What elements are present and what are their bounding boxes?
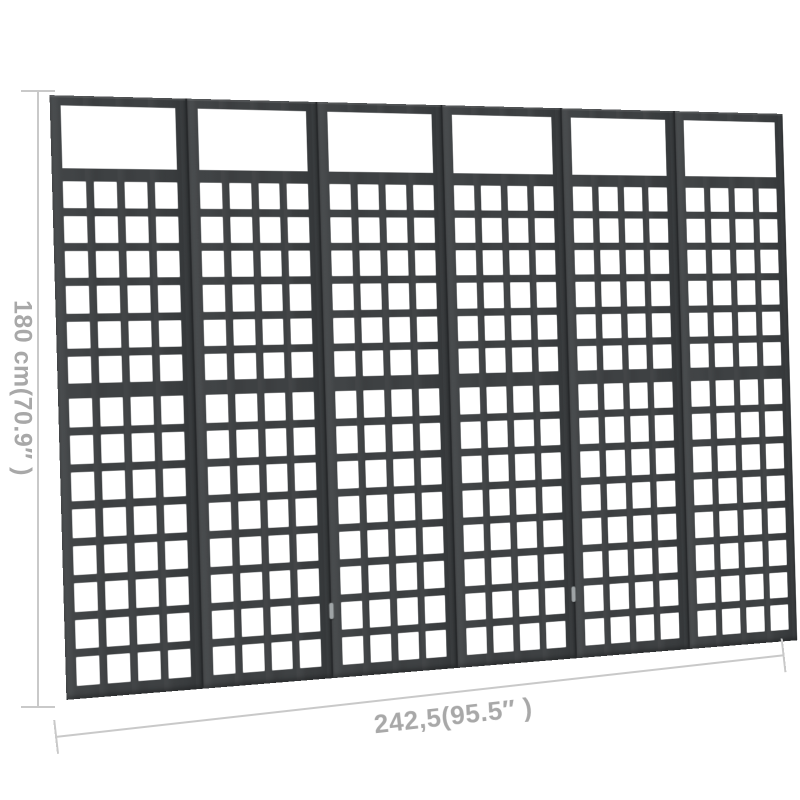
lattice-hole (232, 285, 255, 311)
lattice-hole (236, 429, 259, 458)
lattice-hole (579, 417, 599, 444)
lattice-hole (459, 387, 480, 414)
upper-lattice (454, 185, 558, 373)
lattice-hole (271, 641, 293, 671)
lattice-hole (457, 316, 478, 342)
lattice-hole (101, 434, 125, 464)
lattice-hole (73, 545, 97, 575)
lattice-hole (229, 183, 252, 209)
lattice-hole (161, 395, 184, 424)
lattice-hole (331, 251, 353, 277)
lattice-hole (94, 182, 118, 209)
lattice-hole (651, 281, 670, 305)
lattice-hole (205, 394, 228, 423)
lattice-hole (713, 281, 732, 305)
lattice-hole (759, 188, 778, 212)
lattice-hole (720, 543, 739, 570)
lattice-hole (511, 315, 531, 340)
lattice-hole (156, 251, 179, 278)
lattice-hole (297, 533, 319, 562)
lattice-hole (130, 396, 153, 425)
lattice-hole (744, 541, 763, 568)
lower-lattice (691, 379, 789, 637)
lattice-hole (540, 419, 560, 446)
lattice-hole (269, 570, 291, 599)
lattice-hole (338, 496, 360, 525)
lattice-hole (204, 353, 227, 380)
lower-lattice (69, 395, 191, 686)
lattice-hole (66, 286, 90, 313)
lattice-hole (582, 518, 602, 545)
lattice-hole (69, 398, 93, 428)
product-dimension-image: 180 cm(70.9″ ) 242,5(95.5″ ) (0, 0, 800, 800)
lattice-hole (421, 457, 442, 485)
lattice-hole (231, 251, 254, 277)
height-dimension-bottom-cap (21, 706, 55, 708)
lattice-hole (365, 459, 387, 487)
lattice-hole (288, 217, 310, 243)
lattice-hole (538, 346, 558, 371)
lattice-hole (425, 595, 446, 624)
lattice-hole (238, 500, 261, 529)
lattice-hole (744, 509, 763, 535)
lattice-hole (416, 283, 437, 309)
lattice-hole (517, 521, 537, 549)
lattice-hole (72, 508, 96, 538)
lattice-hole (721, 575, 740, 602)
lower-lattice (205, 392, 321, 675)
hinge (572, 587, 576, 603)
lattice-hole (106, 617, 130, 647)
lattice-hole (649, 219, 668, 243)
lattice-hole (600, 250, 620, 275)
lattice-hole (393, 458, 414, 486)
lattice-hole (492, 591, 513, 619)
lattice-hole (577, 346, 597, 371)
lattice-hole (604, 383, 624, 410)
lattice-hole (298, 568, 320, 597)
lattice-hole (768, 508, 787, 534)
lattice-hole (544, 553, 564, 581)
lattice-hole (576, 314, 596, 339)
lattice-hole (650, 250, 669, 274)
lattice-hole (391, 389, 412, 417)
lattice-hole (482, 250, 503, 275)
lattice-hole (397, 597, 418, 626)
lattice-hole (330, 184, 352, 210)
lattice-hole (696, 544, 715, 571)
lattice-hole (765, 411, 784, 437)
lattice-hole (74, 582, 98, 612)
lattice-hole (694, 479, 713, 506)
lattice-hole (688, 250, 707, 274)
lattice-hole (199, 183, 222, 210)
lattice-hole (363, 390, 385, 418)
lattice-hole (761, 281, 780, 305)
lattice-hole (714, 312, 733, 336)
lattice-hole (341, 601, 363, 630)
lattice-hole (491, 557, 512, 585)
lattice-hole (712, 250, 731, 274)
lattice-hole (167, 612, 190, 642)
lattice-hole (203, 319, 226, 346)
lattice-hole (165, 540, 188, 570)
lattice-hole (608, 550, 628, 577)
lattice-hole (293, 392, 315, 420)
panel-top-window (570, 118, 666, 176)
lattice-hole (417, 316, 438, 342)
lattice-hole (737, 281, 756, 305)
lattice-hole (389, 317, 410, 343)
lattice-hole (539, 385, 559, 412)
lattice-hole (104, 543, 128, 573)
lattice-hole (296, 498, 318, 527)
lattice-hole (233, 319, 256, 346)
upper-lattice (686, 188, 782, 368)
lattice-hole (719, 510, 738, 537)
lattice-hole (424, 561, 445, 589)
panel-top-window (328, 112, 434, 173)
lattice-hole (157, 285, 180, 312)
lattice-hole (291, 318, 313, 344)
lattice-hole (487, 420, 508, 447)
lattice-hole (489, 489, 510, 517)
lattice-hole (461, 456, 482, 484)
lattice-hole (652, 313, 671, 338)
hinge (329, 603, 334, 619)
lattice-hole (657, 481, 676, 508)
lattice-hole (460, 421, 481, 449)
lattice-hole (770, 604, 789, 631)
lattice-hole (234, 353, 257, 380)
lattice-hole (519, 623, 539, 651)
lattice-hole (541, 452, 561, 479)
lattice-hole (332, 284, 354, 310)
lattice-hole (454, 185, 475, 210)
lattice-hole (626, 282, 646, 307)
lattice-hole (735, 188, 754, 212)
lattice-hole (742, 444, 761, 470)
lattice-hole (335, 391, 357, 419)
lattice-hole (598, 187, 618, 212)
room-divider (50, 95, 798, 700)
lattice-hole (738, 312, 757, 336)
lattice-hole (127, 286, 150, 313)
lattice-hole (100, 397, 124, 426)
lattice-hole (689, 312, 708, 336)
lattice-hole (164, 504, 187, 534)
lattice-hole (722, 608, 741, 635)
lattice-hole (270, 606, 292, 635)
lattice-hole (631, 449, 651, 476)
lattice-hole (129, 355, 152, 382)
lattice-hole (336, 426, 358, 454)
divider-panel (441, 105, 576, 668)
lattice-hole (515, 453, 535, 480)
lattice-hole (697, 577, 716, 604)
lattice-hole (237, 465, 260, 494)
lattice-hole (746, 606, 765, 633)
panel-top-window (452, 115, 553, 175)
lattice-hole (455, 218, 476, 243)
lattice-hole (572, 186, 592, 211)
lattice-hole (128, 320, 151, 347)
lattice-hole (331, 217, 353, 243)
lattice-hole (633, 515, 653, 542)
lattice-hole (717, 445, 736, 471)
lattice-hole (260, 251, 282, 277)
lattice-hole (546, 621, 566, 649)
divider-panel (560, 108, 689, 658)
lattice-hole (585, 618, 605, 646)
lattice-hole (510, 283, 530, 308)
lattice-hole (743, 476, 762, 502)
lattice-hole (367, 529, 389, 558)
lattice-hole (655, 415, 674, 442)
lattice-hole (628, 345, 648, 370)
lattice-hole (762, 311, 781, 335)
lattice-hole (507, 186, 527, 211)
lattice-hole (581, 484, 601, 511)
lattice-hole (739, 342, 758, 366)
lattice-hole (610, 616, 630, 644)
divider-panel (316, 102, 457, 678)
lattice-hole (392, 424, 413, 452)
lattice-hole (395, 528, 416, 556)
lattice-hole (136, 615, 159, 645)
divider-panel (674, 111, 798, 649)
lattice-hole (766, 443, 785, 469)
lattice-hole (342, 636, 364, 665)
lattice-hole (625, 250, 645, 274)
lattice-hole (133, 505, 156, 535)
lattice-hole (493, 625, 514, 653)
lattice-hole (71, 472, 95, 502)
lattice-hole (760, 250, 779, 274)
lattice-hole (688, 281, 707, 305)
lower-lattice (335, 388, 446, 665)
lattice-hole (634, 548, 654, 575)
lattice-hole (242, 643, 265, 673)
lattice-hole (263, 352, 285, 379)
lattice-hole (103, 507, 127, 537)
lattice-hole (605, 450, 625, 477)
lattice-hole (482, 218, 503, 243)
lower-lattice (459, 385, 565, 655)
lattice-hole (230, 217, 253, 243)
lattice-hole (388, 284, 409, 310)
lattice-hole (337, 461, 359, 489)
lattice-hole (659, 546, 678, 573)
lattice-hole (368, 564, 390, 593)
lattice-hole (68, 356, 92, 384)
lattice-hole (201, 251, 224, 277)
lattice-hole (764, 379, 783, 405)
lattice-hole (163, 468, 186, 497)
lattice-hole (745, 574, 764, 601)
lattice-hole (95, 216, 119, 243)
lattice-hole (333, 317, 355, 343)
lattice-hole (268, 535, 290, 564)
lattice-hole (458, 348, 479, 374)
lattice-hole (67, 321, 91, 348)
lattice-hole (635, 614, 655, 641)
lattice-hole (535, 250, 555, 275)
lattice-hole (599, 219, 619, 244)
lattice-hole (134, 542, 157, 572)
lattice-hole (102, 470, 126, 500)
lattice-hole (361, 317, 383, 343)
lattice-hole (97, 286, 121, 313)
lattice-hole (166, 576, 189, 606)
lattice-hole (292, 352, 314, 378)
lattice-hole (295, 462, 317, 491)
lattice-hole (483, 283, 504, 308)
lattice-hole (735, 219, 754, 243)
lattice-hole (76, 655, 100, 686)
lattice-hole (485, 348, 506, 373)
lattice-hole (580, 451, 600, 478)
lattice-hole (98, 321, 122, 348)
lattice-hole (583, 551, 603, 578)
lattice-hole (107, 653, 131, 683)
lattice-hole (261, 285, 283, 311)
lattice-hole (514, 419, 534, 446)
lattice-hole (418, 349, 439, 375)
lattice-hole (518, 555, 538, 583)
lattice-hole (542, 486, 562, 513)
lattice-hole (386, 218, 407, 244)
upper-lattice (199, 183, 313, 381)
upper-lattice (330, 184, 439, 377)
lattice-hole (687, 219, 706, 243)
lattice-hole (208, 502, 231, 531)
lattice-hole (715, 343, 734, 367)
lattice-hole (265, 428, 287, 457)
lattice-hole (294, 427, 316, 456)
lattice-hole (653, 344, 672, 369)
height-dimension-line (37, 90, 39, 708)
lattice-hole (533, 186, 553, 211)
lattice-hole (240, 572, 263, 601)
lattice-hole (206, 430, 229, 459)
lattice-hole (366, 494, 388, 522)
lattice-hole (364, 425, 386, 453)
upper-lattice (63, 181, 183, 384)
lattice-hole (656, 448, 675, 475)
height-dimension-label: 180 cm(70.9″ ) (8, 300, 37, 476)
lattice-hole (602, 314, 622, 339)
lattice-hole (768, 540, 787, 566)
lattice-hole (124, 182, 147, 209)
lattice-hole (131, 433, 154, 462)
lattice-hole (369, 599, 391, 628)
lattice-hole (486, 386, 507, 413)
lattice-hole (300, 639, 322, 668)
lattice-hole (207, 466, 230, 495)
lattice-hole (711, 219, 730, 243)
lattice-hole (658, 514, 677, 541)
lattice-hole (604, 416, 624, 443)
lattice-hole (155, 182, 178, 209)
lattice-hole (740, 379, 759, 405)
lattice-hole (767, 475, 786, 501)
lattice-hole (769, 572, 788, 599)
lattice-hole (465, 592, 486, 620)
lattice-hole (466, 627, 487, 655)
lattice-hole (96, 251, 120, 278)
lattice-hole (360, 284, 382, 310)
lattice-hole (634, 581, 654, 608)
lattice-hole (692, 413, 711, 439)
lattice-hole (490, 523, 511, 551)
height-dimension-top-cap (21, 90, 55, 92)
lattice-hole (695, 511, 714, 538)
lattice-hole (629, 382, 649, 409)
lattice-hole (267, 499, 289, 528)
lattice-hole (536, 282, 556, 307)
lattice-hole (710, 188, 729, 212)
lattice-hole (602, 345, 622, 370)
lattice-hole (513, 386, 533, 413)
lattice-hole (419, 388, 440, 416)
lattice-hole (387, 251, 408, 277)
lattice-hole (698, 610, 717, 637)
lattice-hole (413, 185, 434, 211)
lattice-hole (289, 251, 311, 277)
lattice-hole (420, 423, 441, 451)
lattice-hole (359, 218, 381, 244)
lattice-hole (457, 283, 478, 308)
lattice-hole (162, 432, 185, 461)
lattice-hole (396, 562, 417, 591)
lattice-hole (105, 580, 129, 610)
lattice-hole (414, 218, 435, 243)
lower-lattice (578, 382, 680, 646)
lattice-hole (65, 251, 89, 278)
lattice-hole (763, 342, 782, 366)
lattice-hole (575, 282, 595, 307)
lattice-hole (340, 566, 362, 595)
lattice-hole (266, 464, 288, 493)
lattice-hole (716, 380, 735, 406)
lattice-hole (632, 482, 652, 509)
lattice-hole (759, 219, 778, 243)
lattice-hole (211, 609, 234, 639)
lattice-hole (126, 251, 149, 278)
lattice-hole (534, 218, 554, 243)
lattice-hole (509, 250, 529, 275)
lattice-hole (609, 583, 629, 610)
lattice-hole (462, 490, 483, 518)
lattice-hole (132, 469, 155, 499)
lattice-hole (422, 492, 443, 520)
lattice-hole (200, 217, 223, 243)
lattice-hole (741, 412, 760, 438)
lattice-hole (398, 632, 419, 661)
lattice-hole (70, 435, 94, 465)
lattice-hole (693, 446, 712, 472)
lattice-hole (426, 630, 447, 659)
lattice-hole (158, 320, 181, 347)
lattice-hole (649, 187, 668, 211)
lattice-hole (239, 536, 262, 565)
lattice-hole (574, 250, 594, 275)
lattice-hole (624, 219, 644, 243)
lattice-hole (630, 415, 650, 442)
lattice-hole (736, 250, 755, 274)
lattice-hole (394, 493, 415, 521)
